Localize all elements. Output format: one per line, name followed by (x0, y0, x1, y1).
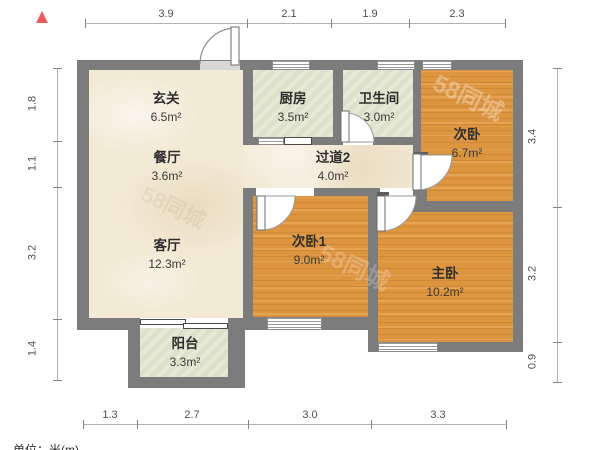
room-label-kitchen: 厨房 3.5m² (278, 92, 309, 123)
dim-top-1: 3.9 (146, 9, 186, 20)
room-label-entry: 玄关 6.5m² (151, 92, 182, 123)
dim-bottom-3: 3.0 (290, 410, 330, 421)
room-area: 9.0m² (292, 254, 327, 266)
room-area: 10.2m² (426, 286, 463, 298)
door-symbols-layer (0, 0, 600, 450)
room-label-master: 主卧 10.2m² (426, 267, 463, 298)
room-name: 过道2 (316, 151, 351, 166)
tick (371, 420, 372, 429)
room-name: 厨房 (278, 92, 309, 107)
tick (248, 420, 249, 429)
dimension-line-left (57, 68, 58, 380)
tick (53, 141, 62, 142)
tick (53, 68, 62, 69)
master-door-leaf (377, 196, 385, 231)
dimension-line-top (85, 23, 505, 24)
bedroom1-door-leaf (257, 196, 265, 230)
room-name: 主卧 (426, 267, 463, 282)
room-label-hallway: 过道2 4.0m² (316, 151, 351, 182)
dim-left-1: 1.8 (28, 84, 39, 124)
dim-left-2: 1.1 (28, 144, 39, 184)
room-area: 3.6m² (152, 170, 183, 182)
entry-door-leaf (231, 27, 239, 65)
room-area: 3.0m² (359, 111, 400, 123)
master-door (377, 196, 416, 231)
bedroom2-door-leaf (413, 154, 421, 190)
dimension-line-right (557, 68, 558, 382)
tick (553, 207, 562, 208)
tick (553, 342, 562, 343)
room-area: 3.3m² (170, 356, 201, 368)
room-label-bedroom1: 次卧1 9.0m² (292, 235, 327, 266)
dim-bottom-1: 1.3 (90, 410, 130, 421)
room-area: 4.0m² (316, 170, 351, 182)
tick (53, 319, 62, 320)
entry-door (200, 27, 239, 65)
dim-top-4: 2.3 (437, 9, 477, 20)
room-label-bathroom: 卫生间 3.0m² (359, 92, 400, 123)
dim-bottom-4: 3.3 (418, 410, 458, 421)
tick (505, 19, 506, 28)
room-label-living: 客厅 12.3m² (148, 239, 185, 270)
room-label-bedroom2: 次卧 6.7m² (452, 128, 483, 159)
tick (553, 68, 562, 69)
tick (506, 420, 507, 429)
dim-left-4: 1.4 (28, 329, 39, 369)
room-label-dining: 餐厅 3.6m² (152, 151, 183, 182)
dim-right-1: 3.4 (528, 117, 539, 157)
room-area: 12.3m² (148, 258, 185, 270)
room-area: 6.7m² (452, 147, 483, 159)
dim-right-3: 0.9 (528, 342, 539, 382)
room-name: 玄关 (151, 92, 182, 107)
bedroom1-door (257, 196, 295, 230)
tick (53, 187, 62, 188)
room-name: 次卧 (452, 128, 483, 143)
north-arrow-icon (36, 11, 48, 23)
room-name: 次卧1 (292, 235, 327, 250)
tick (85, 19, 86, 28)
room-name: 客厅 (148, 239, 185, 254)
tick (137, 420, 138, 429)
tick (553, 382, 562, 383)
dim-right-2: 3.2 (528, 254, 539, 294)
dim-top-2: 2.1 (269, 9, 309, 20)
room-name: 卫生间 (359, 92, 400, 107)
room-name: 餐厅 (152, 151, 183, 166)
bedroom2-door (413, 154, 452, 190)
tick (83, 420, 84, 429)
tick (53, 380, 62, 381)
room-label-balcony: 阳台 3.3m² (170, 337, 201, 368)
dim-left-3: 3.2 (28, 233, 39, 273)
dim-top-3: 1.9 (350, 9, 390, 20)
dimension-line-bottom (83, 424, 506, 425)
bathroom-door-leaf (341, 111, 349, 142)
floorplan-canvas: 58同城 58同城 58同城 玄关 6.5m² 餐厅 3.6m² 客厅 12.3… (0, 0, 600, 450)
tick (247, 19, 248, 28)
dim-bottom-2: 2.7 (172, 410, 212, 421)
unit-note: 单位：米(m) (13, 441, 79, 450)
room-area: 6.5m² (151, 111, 182, 123)
room-area: 3.5m² (278, 111, 309, 123)
tick (331, 19, 332, 28)
room-name: 阳台 (170, 337, 201, 352)
tick (409, 19, 410, 28)
